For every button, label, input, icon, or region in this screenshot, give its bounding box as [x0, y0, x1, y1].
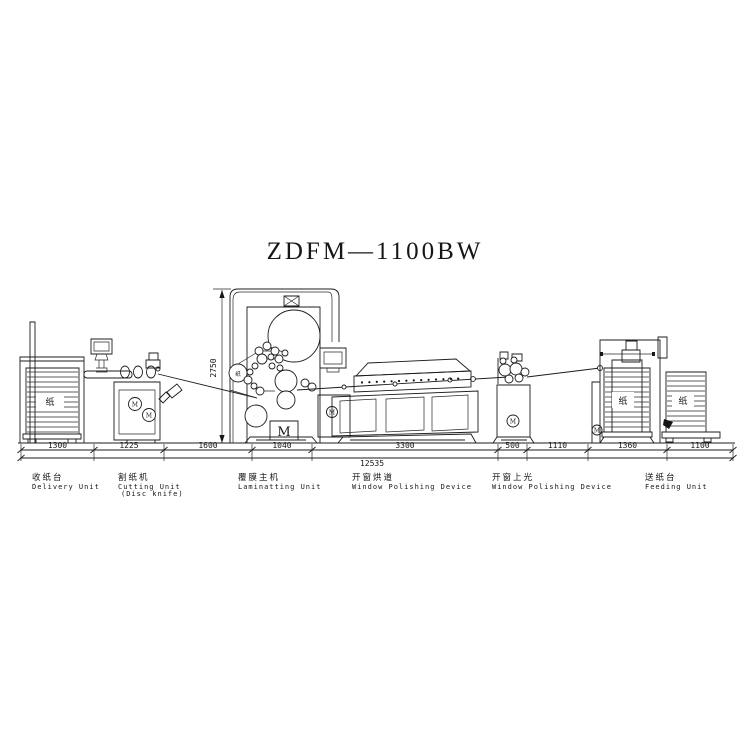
paper-glyph: 纸 — [235, 370, 241, 378]
dim-1360: 1360 — [618, 441, 637, 450]
dimension-lines: 1300 1225 1600 1040 3300 500 1110 1360 1… — [18, 441, 737, 468]
delivery-unit-drawing: 纸 — [20, 322, 84, 443]
conveyor-bar — [84, 371, 132, 378]
dim-1110: 1110 — [548, 441, 567, 450]
label-delivery-en: Delivery Unit — [32, 483, 100, 491]
laminating-unit-drawing: 纸 M — [229, 289, 346, 443]
motor-label: M — [594, 428, 600, 435]
label-feeding-zh: 送纸台 — [645, 472, 677, 483]
label-varnishing-en: Window Polishing Device — [492, 483, 612, 491]
dim-1040: 1040 — [272, 441, 291, 450]
label-laminating-zh: 覆膜主机 — [238, 472, 280, 483]
label-cutting-en2: (Disc knife) — [121, 490, 184, 498]
dim-500: 500 — [505, 441, 520, 450]
paper-glyph: 纸 — [618, 395, 627, 407]
dim-total: 12535 — [360, 459, 384, 468]
main-motor-label: M — [277, 425, 290, 440]
label-varnishing-zh: 开窗上光 — [492, 472, 534, 483]
dim-height: 2750 — [209, 358, 218, 377]
machine-line-drawing: 纸 M M — [0, 0, 750, 750]
label-cutting-zh: 割纸机 — [118, 472, 150, 483]
label-delivery-zh: 收纸台 — [32, 472, 64, 483]
drying-tunnel-drawing: M — [318, 359, 478, 443]
varnishing-unit-drawing: M — [493, 352, 534, 443]
paper-glyph: 纸 — [678, 395, 687, 407]
dim-1225: 1225 — [119, 441, 138, 450]
clamp-mark — [663, 419, 673, 429]
dim-1300: 1300 — [48, 441, 67, 450]
motor-label: M — [132, 402, 138, 409]
dim-3300: 3300 — [395, 441, 414, 450]
label-drying-zh: 开窗烘道 — [352, 472, 394, 483]
feeding-unit-drawing: M 纸 — [592, 337, 667, 443]
machine-line-diagram-page: ZDFM—1100BW 纸 — [0, 0, 750, 750]
label-drying-en: Window Polishing Device — [352, 483, 472, 491]
label-feeding-en: Feeding Unit — [645, 483, 708, 491]
dim-1100: 1100 — [690, 441, 709, 450]
web-line-incline — [297, 377, 508, 390]
height-dimension: 2750 — [209, 289, 231, 443]
unit-labels: 收纸台 Delivery Unit 割纸机 Cutting Unit (Disc… — [32, 472, 708, 498]
label-laminating-en: Laminatting Unit — [238, 483, 321, 491]
motor-label: M — [510, 419, 516, 426]
bridge-line — [527, 368, 600, 377]
dim-1600: 1600 — [198, 441, 217, 450]
paper-pile-drawing: 纸 — [662, 372, 720, 442]
motor-label: M — [146, 413, 152, 420]
cutting-unit-drawing: M M — [114, 353, 182, 443]
paper-glyph: 纸 — [45, 396, 54, 408]
control-monitor-icon — [91, 339, 112, 372]
